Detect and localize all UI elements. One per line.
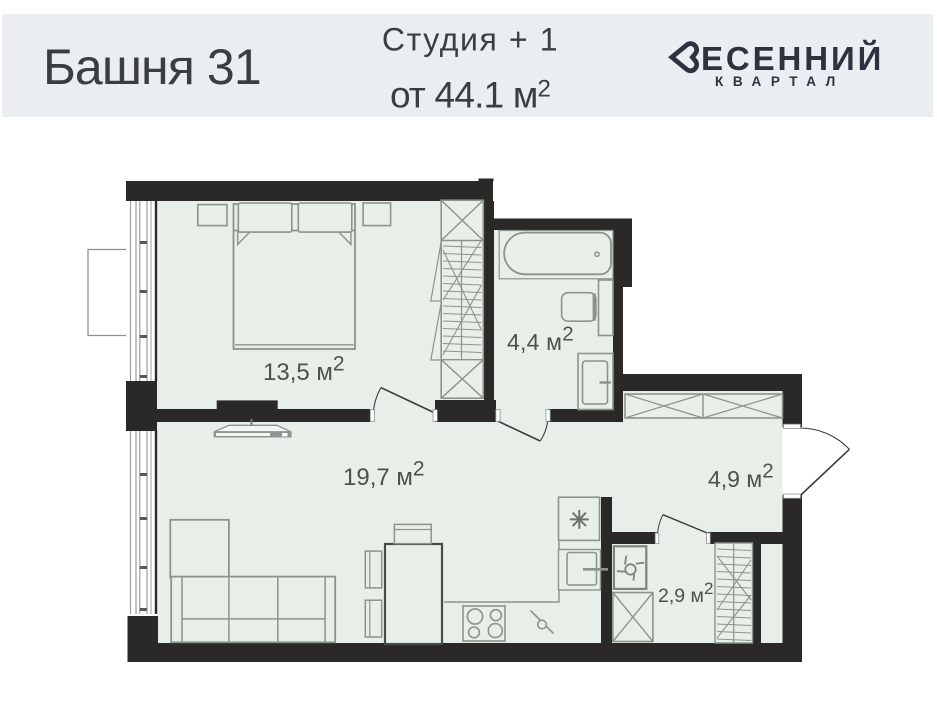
svg-text:Башня 31: Башня 31 [43,39,261,95]
svg-text:Студия + 1: Студия + 1 [382,22,559,58]
svg-text:от 44.1 м2: от 44.1 м2 [390,75,551,116]
svg-text:ЕСЕННИЙ: ЕСЕННИЙ [701,39,884,77]
svg-text:КВАРТАЛ: КВАРТАЛ [715,74,845,89]
